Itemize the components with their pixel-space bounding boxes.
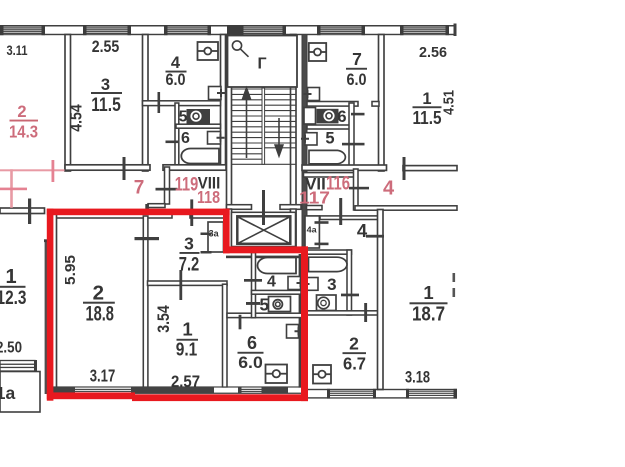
svg-text:11.5: 11.5 (91, 94, 121, 116)
svg-text:2: 2 (17, 103, 26, 121)
svg-text:119: 119 (175, 175, 199, 196)
svg-text:5: 5 (179, 109, 188, 126)
svg-text:7: 7 (352, 49, 362, 69)
svg-text:1: 1 (182, 319, 192, 340)
svg-text:3: 3 (327, 275, 336, 294)
svg-text:6: 6 (181, 130, 190, 147)
svg-text:6: 6 (337, 108, 346, 126)
svg-text:3.17: 3.17 (90, 366, 116, 386)
svg-text:6: 6 (247, 333, 257, 353)
svg-text:6.0: 6.0 (166, 71, 186, 89)
svg-text:4: 4 (171, 54, 181, 72)
svg-text:4a: 4a (307, 225, 317, 235)
svg-text:18.8: 18.8 (85, 302, 114, 326)
svg-text:4: 4 (357, 220, 368, 241)
svg-text:3.18: 3.18 (405, 369, 430, 387)
svg-text:3: 3 (101, 76, 110, 94)
svg-text:12.3: 12.3 (0, 288, 27, 309)
svg-text:6.7: 6.7 (343, 354, 366, 374)
svg-text:3.11: 3.11 (7, 43, 28, 58)
svg-text:1: 1 (5, 266, 16, 288)
svg-text:6.0: 6.0 (347, 71, 367, 89)
svg-text:Г: Г (257, 55, 266, 72)
svg-text:2: 2 (349, 334, 359, 354)
svg-text:5: 5 (325, 130, 334, 148)
svg-text:4: 4 (383, 178, 395, 200)
svg-text:3.54: 3.54 (155, 305, 173, 333)
svg-text:5: 5 (259, 295, 269, 315)
svg-text:4.51: 4.51 (442, 90, 458, 115)
svg-text:7: 7 (134, 177, 145, 198)
svg-text:117: 117 (299, 188, 330, 208)
svg-text:2.55: 2.55 (92, 38, 120, 56)
svg-text:18.7: 18.7 (412, 303, 445, 326)
svg-text:2.56: 2.56 (419, 44, 447, 61)
svg-text:11.5: 11.5 (413, 108, 442, 128)
svg-text:14.3: 14.3 (9, 122, 38, 142)
svg-text:2.50: 2.50 (0, 340, 22, 357)
svg-text:4: 4 (267, 274, 276, 291)
svg-text:3a: 3a (209, 229, 220, 239)
svg-text:5.95: 5.95 (62, 255, 79, 285)
svg-text:9.1: 9.1 (176, 340, 198, 360)
svg-text:7.2: 7.2 (179, 255, 200, 276)
svg-text:1: 1 (422, 90, 431, 108)
svg-text:1: 1 (423, 282, 433, 303)
svg-text:3: 3 (184, 234, 194, 254)
svg-text:4.54: 4.54 (68, 104, 86, 132)
svg-text:1a: 1a (0, 383, 15, 403)
svg-text:2.57: 2.57 (171, 372, 200, 391)
svg-text:6.0: 6.0 (238, 353, 263, 372)
svg-text:118: 118 (197, 187, 220, 207)
